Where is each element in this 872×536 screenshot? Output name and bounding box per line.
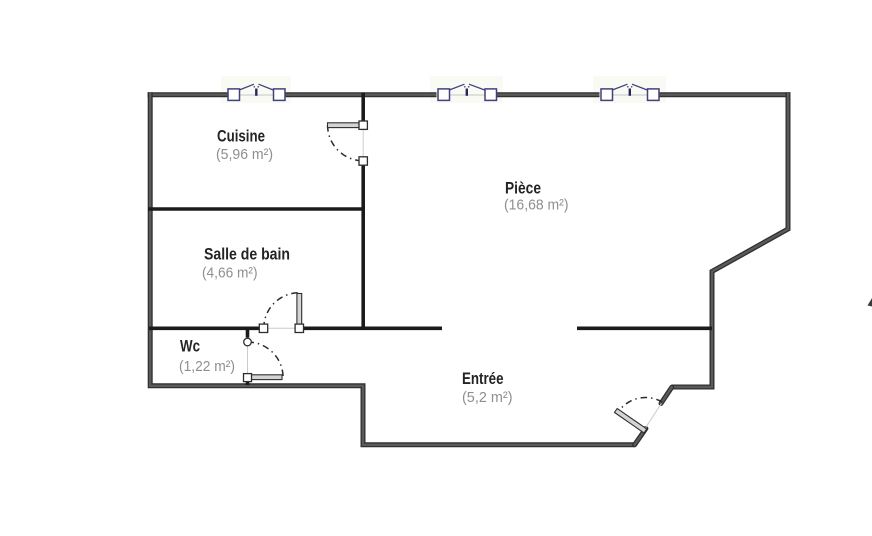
svg-text:Salle de bain: Salle de bain [204, 246, 290, 264]
svg-text:(5,2 m²): (5,2 m²) [462, 389, 513, 406]
svg-text:Pièce: Pièce [505, 180, 541, 198]
svg-text:Cuisine: Cuisine [217, 128, 265, 146]
svg-text:(4,66 m²): (4,66 m²) [202, 265, 258, 282]
svg-text:(5,96 m²): (5,96 m²) [216, 146, 273, 163]
svg-text:Wc: Wc [180, 338, 200, 356]
svg-text:(16,68 m²): (16,68 m²) [504, 197, 569, 214]
svg-text:(1,22 m²): (1,22 m²) [179, 358, 235, 375]
svg-text:Entrée: Entrée [462, 370, 504, 388]
